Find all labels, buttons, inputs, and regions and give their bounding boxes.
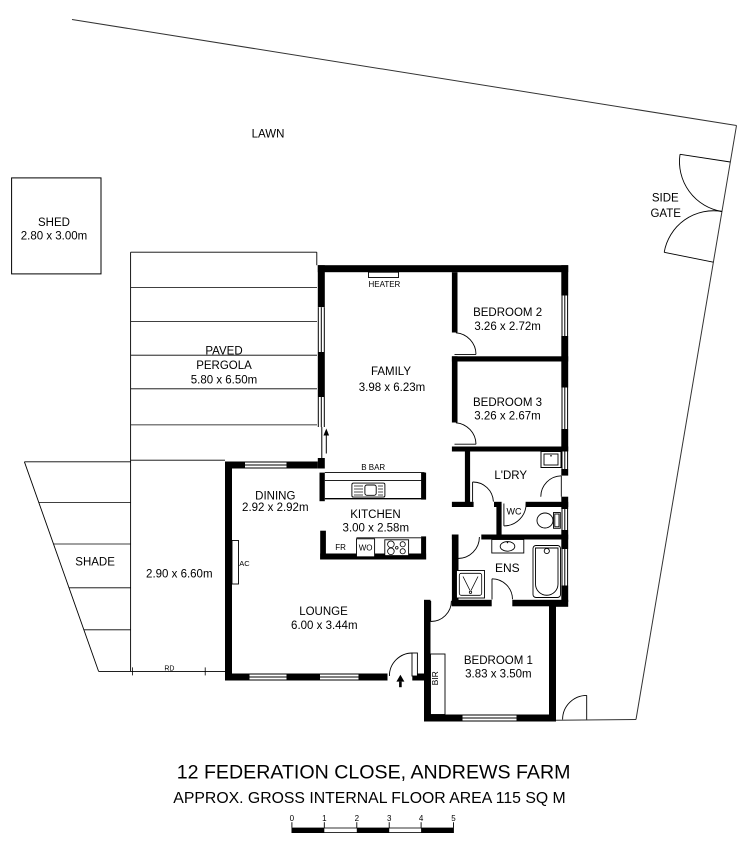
svg-text:3.98 x 6.23m: 3.98 x 6.23m xyxy=(359,382,425,394)
svg-text:3.26 x 2.72m: 3.26 x 2.72m xyxy=(474,321,540,333)
svg-text:3.00 x 2.58m: 3.00 x 2.58m xyxy=(343,522,409,534)
svg-text:BEDROOM 2: BEDROOM 2 xyxy=(473,307,542,319)
svg-text:RD: RD xyxy=(164,666,174,673)
svg-text:BEDROOM 1: BEDROOM 1 xyxy=(464,655,533,667)
svg-text:GATE: GATE xyxy=(650,208,681,220)
svg-text:4: 4 xyxy=(419,814,424,823)
svg-text:3.83 x 3.50m: 3.83 x 3.50m xyxy=(465,668,531,680)
svg-text:SHED: SHED xyxy=(38,217,70,229)
svg-text:PAVED: PAVED xyxy=(205,346,242,358)
svg-text:6.00 x 3.44m: 6.00 x 3.44m xyxy=(291,620,357,632)
svg-text:0: 0 xyxy=(290,814,295,823)
svg-text:KITCHEN: KITCHEN xyxy=(350,509,400,521)
svg-text:5.80 x 6.50m: 5.80 x 6.50m xyxy=(191,374,257,386)
svg-text:APPROX. GROSS INTERNAL FLOOR A: APPROX. GROSS INTERNAL FLOOR AREA 115 SQ… xyxy=(173,790,565,807)
svg-text:12 FEDERATION CLOSE, ANDREWS F: 12 FEDERATION CLOSE, ANDREWS FARM xyxy=(177,761,571,783)
svg-text:SHADE: SHADE xyxy=(75,557,115,569)
svg-text:1: 1 xyxy=(322,814,327,823)
svg-text:WO: WO xyxy=(359,543,373,552)
svg-text:5: 5 xyxy=(451,814,456,823)
svg-text:3: 3 xyxy=(387,814,392,823)
svg-text:FR: FR xyxy=(335,543,346,552)
svg-text:2: 2 xyxy=(355,814,360,823)
svg-text:L'DRY: L'DRY xyxy=(494,470,527,482)
svg-text:HEATER: HEATER xyxy=(368,280,400,289)
svg-text:2.92 x 2.92m: 2.92 x 2.92m xyxy=(242,502,308,514)
svg-text:PERGOLA: PERGOLA xyxy=(196,360,252,372)
svg-text:FAMILY: FAMILY xyxy=(371,366,411,378)
svg-text:LAWN: LAWN xyxy=(252,129,285,141)
svg-text:2.90 x 6.60m: 2.90 x 6.60m xyxy=(146,569,212,581)
svg-text:WC: WC xyxy=(507,507,522,517)
svg-text:ENS: ENS xyxy=(495,561,520,575)
svg-text:SIDE: SIDE xyxy=(652,193,679,205)
svg-text:B BAR: B BAR xyxy=(361,463,385,472)
svg-text:DINING: DINING xyxy=(255,491,295,503)
svg-text:BIR: BIR xyxy=(430,671,440,685)
svg-text:LOUNGE: LOUNGE xyxy=(299,606,348,618)
svg-text:BEDROOM 3: BEDROOM 3 xyxy=(473,397,542,409)
svg-text:2.80 x 3.00m: 2.80 x 3.00m xyxy=(21,231,87,243)
svg-text:AC: AC xyxy=(239,559,250,568)
svg-text:3.26 x 2.67m: 3.26 x 2.67m xyxy=(474,411,540,423)
